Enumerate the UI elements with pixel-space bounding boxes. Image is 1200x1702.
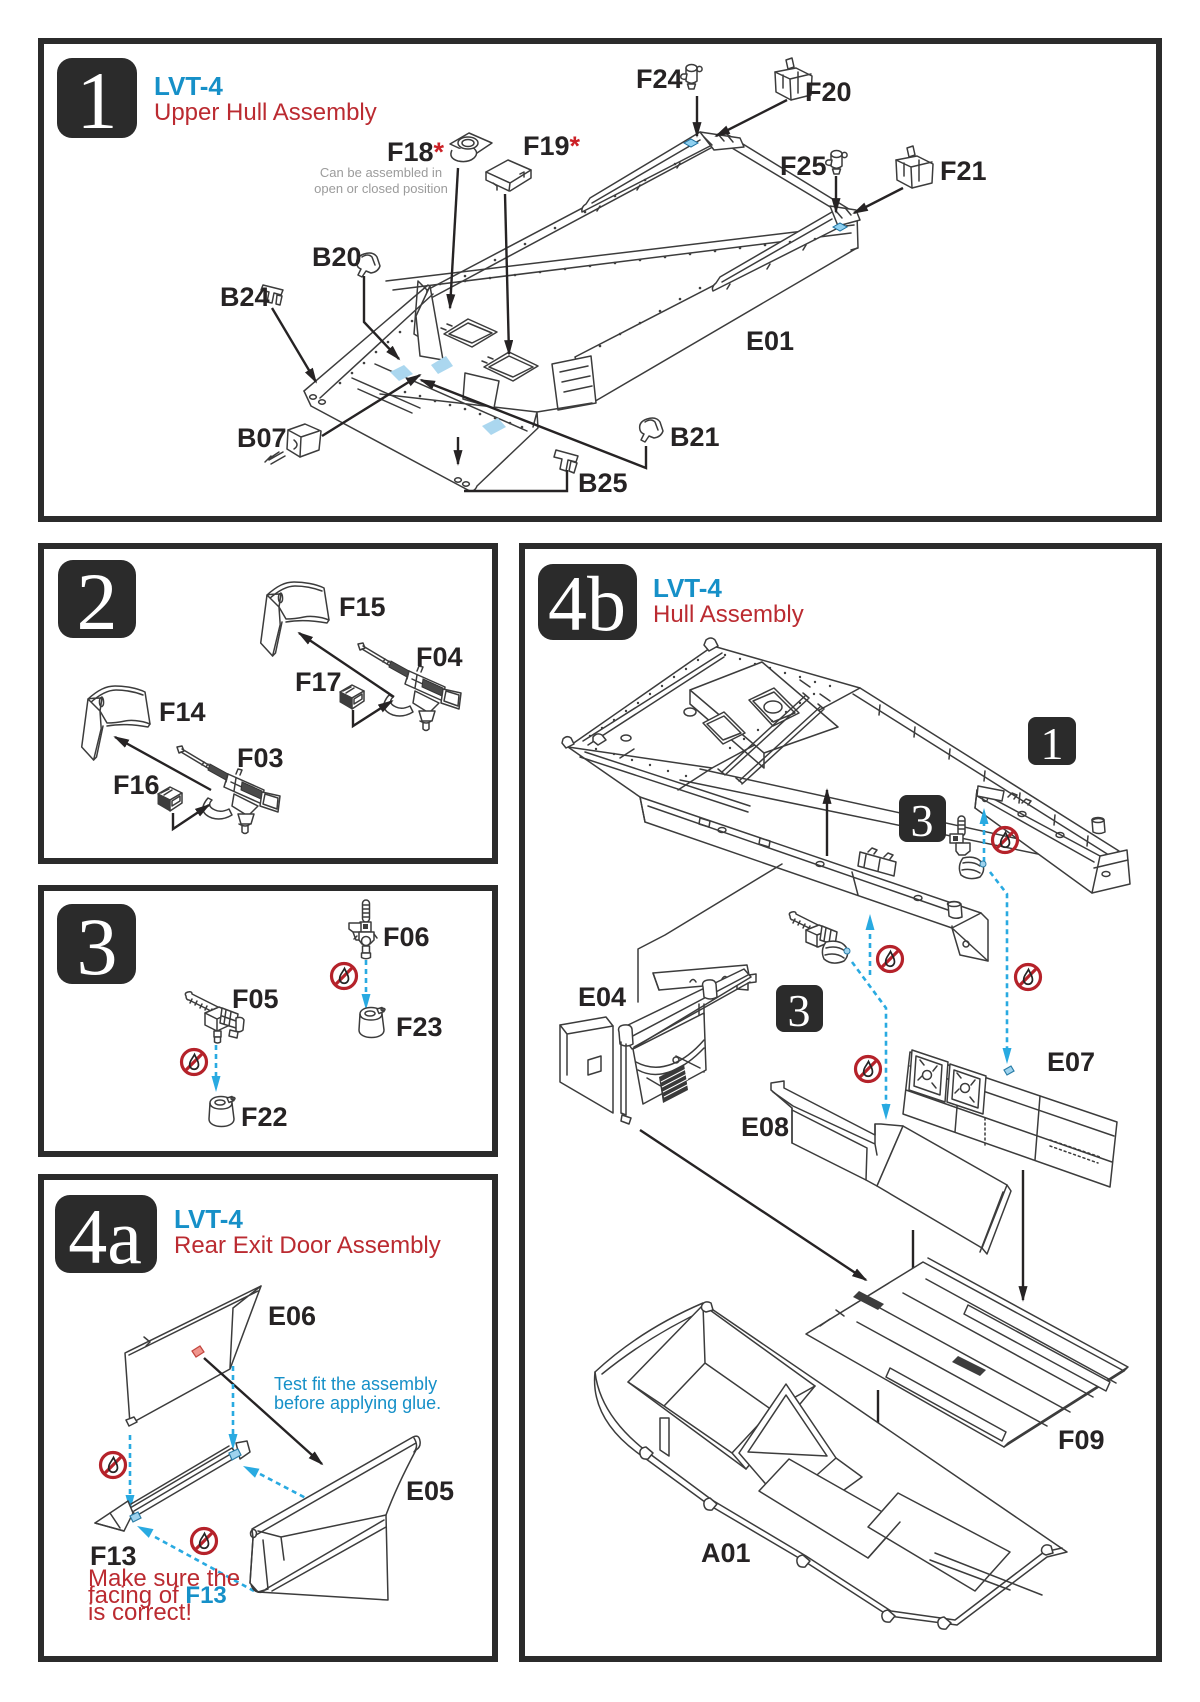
svg-text:F04: F04 [416,642,463,672]
svg-text:F23: F23 [396,1012,443,1042]
svg-text:E04: E04 [578,982,626,1012]
svg-text:F06: F06 [383,922,430,952]
svg-text:3: 3 [911,795,934,846]
svg-text:before applying glue.: before applying glue. [274,1393,441,1413]
svg-text:F19*: F19* [523,131,581,161]
svg-text:LVT-4: LVT-4 [653,573,722,603]
svg-text:Upper Hull Assembly: Upper Hull Assembly [154,99,377,126]
svg-text:A01: A01 [701,1538,751,1568]
svg-text:F18*: F18* [387,137,445,167]
svg-text:F16: F16 [113,770,160,800]
svg-text:Can be assembled in: Can be assembled in [320,165,442,180]
svg-text:B24: B24 [220,282,270,312]
svg-text:F03: F03 [237,743,284,773]
svg-text:E06: E06 [268,1301,316,1331]
svg-text:4a: 4a [68,1193,142,1280]
svg-text:is correct!: is correct! [88,1599,192,1626]
svg-text:Hull Assembly: Hull Assembly [653,601,804,628]
svg-text:B25: B25 [578,468,628,498]
svg-text:F14: F14 [159,697,206,727]
svg-text:3: 3 [77,901,118,992]
svg-text:LVT-4: LVT-4 [154,71,223,101]
svg-text:3: 3 [788,985,811,1036]
svg-text:F21: F21 [940,156,987,186]
svg-text:F09: F09 [1058,1425,1105,1455]
svg-text:E05: E05 [406,1476,454,1506]
svg-text:F05: F05 [232,984,279,1014]
svg-text:B20: B20 [312,242,362,272]
svg-text:Test fit the assembly: Test fit the assembly [274,1374,437,1394]
svg-text:4b: 4b [548,560,626,647]
svg-text:1: 1 [1041,718,1064,769]
svg-text:B21: B21 [670,422,720,452]
svg-text:E07: E07 [1047,1047,1095,1077]
svg-text:open or closed position: open or closed position [314,181,448,196]
svg-text:F22: F22 [241,1102,288,1132]
svg-text:F17: F17 [295,667,342,697]
svg-text:F24: F24 [636,64,683,94]
svg-text:E08: E08 [741,1112,789,1142]
svg-text:Rear Exit Door Assembly: Rear Exit Door Assembly [174,1232,441,1259]
svg-text:F25: F25 [780,151,827,181]
svg-text:2: 2 [77,556,118,647]
svg-text:F20: F20 [805,77,852,107]
svg-text:F15: F15 [339,592,386,622]
svg-text:E01: E01 [746,326,794,356]
svg-text:LVT-4: LVT-4 [174,1204,243,1234]
svg-text:B07: B07 [237,423,287,453]
svg-text:1: 1 [77,55,118,146]
